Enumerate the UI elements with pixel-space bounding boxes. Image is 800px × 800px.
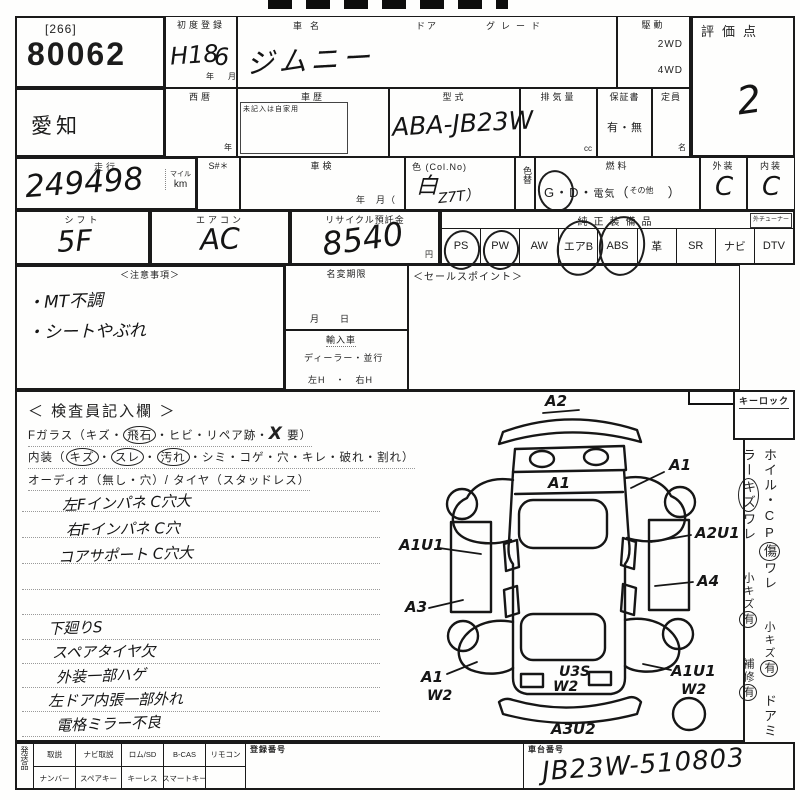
history-box: 車歴 未記入は自家用: [237, 88, 389, 157]
label-a2: A2: [544, 392, 567, 410]
lot-number-box: [266] 80062: [15, 16, 165, 88]
fglass-mid: ・ヒビ・リペア跡・: [156, 430, 269, 442]
fuel-g-hand-circle: [534, 167, 578, 216]
ruling-line: [22, 687, 380, 688]
grid-smart-key: スマートキー: [163, 766, 205, 790]
grid-navi-manual: ナビ取説: [75, 742, 121, 766]
note-door-trim: 左ドア内張一部外れ: [48, 688, 183, 711]
label-a1u1-right-rear: A1U1: [670, 662, 716, 680]
shift-value: 5F: [56, 223, 93, 259]
rear-left-wheel: [448, 621, 478, 651]
name-change-month-day: 月 日: [310, 312, 350, 325]
import-handle: 左H ・ 右H: [308, 373, 373, 386]
score-value: 2: [734, 77, 764, 124]
equip-aw: AW: [519, 229, 558, 263]
first-registration-box: 初度登録 H18 年 6 月: [165, 16, 237, 88]
equip-dtv: DTV: [754, 229, 793, 263]
caution-label: ＜注意事項＞: [17, 268, 283, 281]
interior-circled-yogore: 汚れ: [157, 448, 190, 466]
car-name-label: 車名: [293, 19, 327, 32]
grid-number-plate: ナンバー: [33, 766, 75, 790]
capacity-suffix: 名: [678, 142, 686, 153]
label-w2-left-rear: W2: [427, 688, 452, 704]
fuel-electric: 電気: [594, 189, 616, 200]
right-headlight: [584, 449, 608, 465]
grid-bcas: B-CAS: [163, 742, 205, 766]
drive-2wd: 2WD: [658, 39, 683, 50]
leader-a1-rf: [631, 472, 664, 488]
interior-box: 内装 C: [747, 157, 795, 210]
yen-suffix: 円: [425, 249, 433, 260]
color-change-box: 色替: [515, 157, 535, 210]
sales-point-box: ＜セールスポイント＞: [408, 265, 740, 390]
name-change-box: 名変期限 月 日: [285, 265, 408, 330]
caution-note-1: ・MT不調: [27, 286, 104, 314]
caution-box: ＜注意事項＞ ・MT不調 ・シートやぶれ: [15, 265, 285, 390]
interior-suffix: ・シミ・コゲ・穴・キレ・破れ・割れ）: [190, 452, 415, 464]
score-box: 評価点 2: [690, 16, 795, 157]
mileage-box: 走行 249498 マイル km: [15, 157, 197, 210]
grid-keyless: キーレス: [121, 766, 163, 790]
keylock-label: キーロック: [739, 394, 789, 409]
repair-note: 補修有: [742, 645, 754, 701]
warranty-label: 保証書: [598, 90, 651, 103]
right-rear-pillar: [621, 584, 636, 615]
label-a3-left: A3: [404, 598, 427, 616]
car-damage-diagram: A2 A1 A1 A1U1 A2U1 A3 A4 A1 W2 U3S W2 A1…: [393, 392, 749, 742]
grade-label: グレード: [486, 19, 546, 32]
color-code: Z7T）: [437, 184, 480, 208]
model-label: 型式: [390, 90, 519, 103]
first-registration-month: 6: [214, 43, 229, 71]
right-taillight: [589, 672, 611, 685]
first-registration-label: 初度登録: [166, 18, 236, 31]
label-a1-right-fender: A1: [668, 456, 691, 474]
tuner-note: 外チューナー: [750, 213, 792, 228]
recycle-box: リサイクル預託金 8540 円: [290, 210, 440, 265]
interior-label: 内装: [748, 159, 794, 172]
right-door-panel: [649, 520, 689, 610]
cowl-line: [515, 492, 623, 494]
drive-box: 駆動 2WD 4WD: [617, 16, 690, 88]
leader-a4: [655, 582, 693, 586]
wheel-cp-note: ホイル・CP傷ワレ: [762, 448, 777, 591]
fglass-prefix: Fガラス（キズ・: [28, 430, 123, 442]
shipping-grid: 取説 ナビ取説 ロム/SD B-CAS リモコン ナンバー スペアキー キーレス…: [33, 742, 245, 790]
sales-point-label: ＜セールスポイント＞: [413, 268, 523, 283]
interior-condition-line: 内装（キズ・スレ・汚れ・シミ・コゲ・穴・キレ・破れ・割れ）: [28, 448, 415, 469]
cc-suffix: cc: [584, 144, 592, 153]
label-a1u1-left-door: A1U1: [398, 536, 444, 554]
shipping-items-label: 発送品: [19, 746, 30, 788]
label-a4-right: A4: [696, 572, 719, 590]
import-label: 輸入車: [326, 333, 356, 347]
seireki-year-suffix: 年: [224, 142, 232, 153]
lot-bracket: [266]: [45, 22, 77, 36]
ruling-line: [22, 614, 380, 615]
note-right-f-panel: 右Fインパネ C穴: [66, 517, 180, 540]
capacity-label: 定員: [653, 90, 689, 103]
capacity-box: 定員 名: [652, 88, 690, 157]
grid-manual: 取説: [33, 742, 75, 766]
ruling-line: [22, 711, 380, 712]
label-u3s-gate: U3S: [559, 664, 590, 680]
prefecture: 愛知: [31, 110, 81, 140]
chassis-number-label: 車台番号: [528, 744, 564, 755]
left-front-pillar: [504, 540, 519, 571]
model-value: ABA-JB23W: [391, 105, 534, 141]
caution-note-2: ・シートやぶれ: [27, 316, 146, 343]
aircon-box: エアコン AC: [150, 210, 290, 265]
paren-open: （: [616, 185, 630, 200]
left-rear-pillar: [504, 586, 519, 617]
sidebar-vertical-notes: ホイル・CP傷ワレ 小キズ有 ドアミラーキズワレ 小キズ有 補修有: [738, 448, 780, 744]
grid-rom-sd: ロム/SD: [121, 742, 163, 766]
rear-window: [521, 614, 605, 660]
chassis-number-value: JB23W-510803: [541, 743, 746, 787]
left-taillight: [521, 674, 543, 687]
interior-circled-sure: スレ: [111, 448, 144, 466]
label-a3u2-rear-bumper: A3U2: [550, 720, 596, 738]
small-scratch-note-2: 小キズ有: [742, 559, 754, 628]
audio-tire-line: オーディオ（無し・穴）/ タイヤ（スタッドレス）: [28, 472, 310, 491]
km-unit: km: [170, 179, 191, 190]
note-power-mirror: 電格ミラー不良: [56, 711, 162, 736]
color-box: 色 (Col.No) 白 Z7T）: [405, 157, 515, 210]
fuel-box: 燃料 G・D・電気（その他 ）: [535, 157, 700, 210]
left-door-panel: [451, 522, 491, 612]
aircon-value: AC: [199, 221, 240, 256]
label-a1-left-rear: A1: [420, 668, 443, 686]
door-label: ドア: [416, 19, 438, 32]
fglass-circled-flying-stone: 飛石: [123, 426, 156, 444]
shaken-label: 車検: [241, 159, 404, 172]
dot-sep1: ・: [99, 452, 112, 464]
seireki-label: 西暦: [166, 90, 236, 103]
leader-a2: [543, 410, 579, 413]
import-box: 輸入車 ディーラー・並行 左H ・ 右H: [285, 330, 408, 390]
fglass-x-mark: X: [269, 424, 283, 444]
ruling-line: [22, 589, 380, 590]
left-headlight: [530, 451, 554, 467]
interior-grade: C: [762, 172, 780, 202]
fuel-other: その他: [630, 186, 654, 195]
cropped-title-banner: [268, 0, 508, 9]
grid-spare-key: スペアキー: [75, 766, 121, 790]
note-exterior-peel: 外装一部ハゲ: [56, 663, 147, 687]
warranty-box: 保証書 有・無: [597, 88, 652, 157]
registration-number-label: 登録番号: [250, 744, 286, 755]
s-number-box: S#＊: [197, 157, 240, 210]
car-name-box: 車名 ドア グレード ジムニー: [237, 16, 617, 88]
name-change-label: 名変期限: [286, 267, 407, 280]
equip-sr: SR: [676, 229, 715, 263]
fglass-suffix: 要）: [287, 430, 312, 442]
shaken-box: 車検 年 月（: [240, 157, 405, 210]
displacement-label: 排気量: [521, 90, 596, 103]
label-a2u1-right-door: A2U1: [694, 524, 740, 542]
interior-circled-kizu: キズ: [66, 448, 99, 466]
year-suffix: 年: [206, 71, 214, 82]
leader-a3: [429, 600, 463, 608]
color-change-label: 色替: [521, 166, 534, 184]
color-value: 白: [416, 168, 438, 200]
inspector-title: ＜ 検査員記入欄 ＞: [28, 400, 176, 421]
mile-unit: マイル: [170, 169, 191, 179]
lot-number: 80062: [27, 36, 126, 73]
leader-a1u1-lf: [439, 548, 481, 554]
month-suffix: 月: [228, 71, 236, 82]
exterior-grade: C: [715, 172, 733, 202]
exterior-box: 外装 C: [700, 157, 747, 210]
label-w2-spare: W2: [681, 682, 706, 698]
dot-sep2: ・: [144, 452, 157, 464]
exterior-label: 外装: [701, 159, 746, 172]
car-name-value: ジムニー: [245, 36, 375, 83]
front-bumper: [499, 419, 641, 444]
chassis-number-cell: 車台番号 JB23W-510803: [523, 742, 795, 790]
note-left-f-panel: 左Fインパネ C穴大: [62, 490, 192, 515]
s-number-label: S#＊: [198, 159, 239, 172]
front-left-wheel: [447, 489, 477, 519]
note-spare-tire: スペアタイヤ欠: [52, 640, 156, 663]
auction-sheet: [266] 80062 初度登録 H18 年 6 月 車名 ドア グレード ジム…: [0, 0, 800, 800]
ruling-line: [22, 639, 380, 640]
score-label-text: 評価点: [701, 21, 764, 40]
shift-box: シフト 5F: [15, 210, 150, 265]
drive-label: 駆動: [618, 18, 689, 31]
shaken-suffix: 年 月（: [356, 193, 396, 206]
import-dealer: ディーラー・並行: [304, 351, 383, 364]
fglass-line: Fガラス（キズ・飛石・ヒビ・リペア跡・X 要）: [28, 424, 312, 447]
first-registration-year: H18: [169, 39, 219, 70]
grid-empty: [205, 766, 245, 790]
label-w2-gate: W2: [553, 679, 578, 695]
keylock-box: キーロック: [733, 390, 795, 440]
seireki-box: 西暦 年: [165, 88, 237, 157]
model-code-box: 型式 ABA-JB23W: [389, 88, 520, 157]
interior-prefix: 内装（: [28, 452, 66, 464]
mileage-value: 249498: [24, 161, 145, 205]
ruling-line: [22, 736, 380, 737]
equip-navi: ナビ: [715, 229, 754, 263]
warranty-value: 有・無: [607, 119, 643, 135]
registration-number-cell: 登録番号: [245, 742, 523, 790]
grid-remote: リモコン: [205, 742, 245, 766]
drive-4wd: 4WD: [658, 65, 683, 76]
note-underside: 下廻りS: [48, 616, 103, 639]
small-scratch-note-1: 小キズ有: [763, 608, 775, 677]
prefecture-box: 愛知: [15, 88, 165, 157]
paren-close: ）: [668, 185, 682, 200]
spare-tire-circle: [673, 698, 705, 730]
ruling-line: [22, 663, 380, 664]
windshield: [519, 500, 607, 548]
label-a1-hood: A1: [547, 474, 570, 492]
fuel-dot2: ・: [580, 185, 594, 200]
history-note: 未記入は自家用: [243, 104, 299, 114]
